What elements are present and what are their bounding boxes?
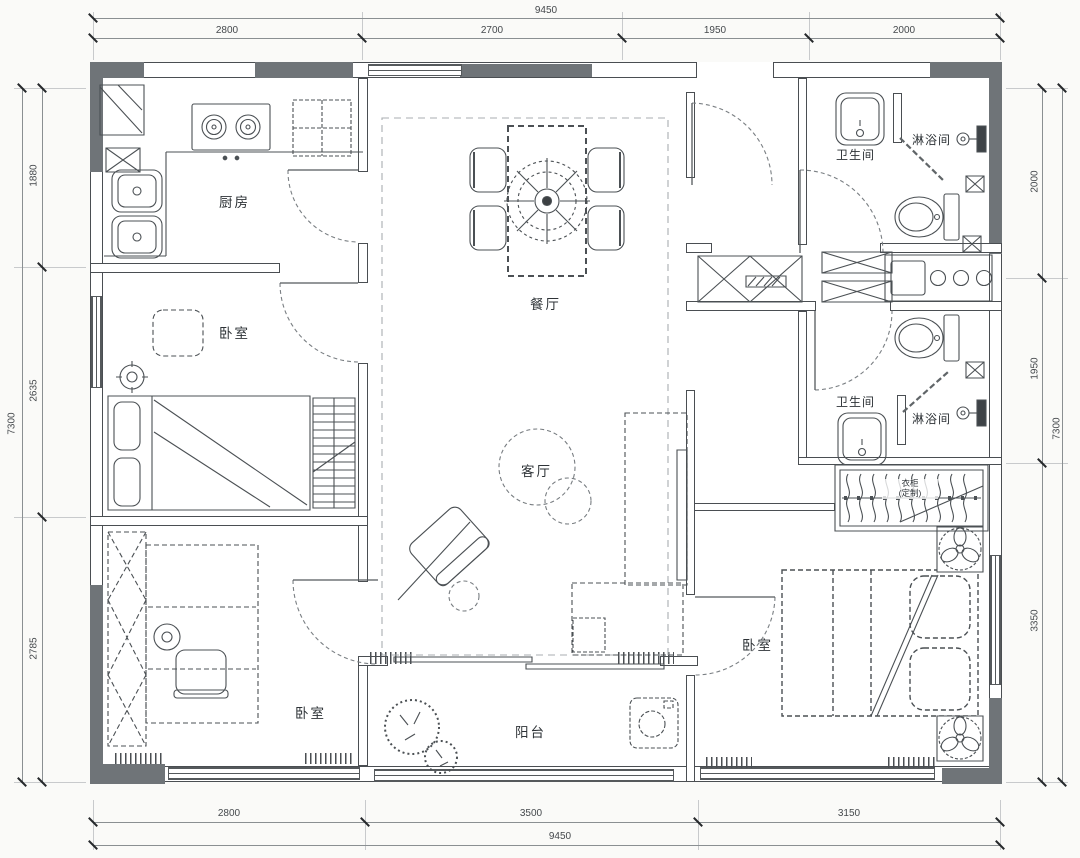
- side-table: [573, 618, 605, 652]
- downlight-icon: [116, 361, 148, 393]
- kitchen-sink-icon: [112, 170, 162, 258]
- washbasin-icon: [838, 413, 886, 465]
- wardrobe-column: [108, 532, 146, 746]
- radiator-icon: [313, 398, 355, 508]
- wardrobe-label: 衣柜 (定制): [882, 479, 938, 499]
- room-label-bathroom-mid: 卫生间: [836, 393, 875, 410]
- bed: [108, 396, 310, 510]
- toilet-icon: [895, 315, 959, 361]
- plant-detail: [400, 712, 448, 766]
- room-label-bedroom-left: 卧室: [219, 322, 250, 342]
- toilet-icon: [895, 194, 959, 240]
- tv-icon: [677, 450, 687, 580]
- shower-door-icon: [900, 138, 948, 412]
- pillow: [114, 402, 140, 450]
- kitchen-fixtures: [100, 85, 363, 258]
- washbasin-icon: [836, 93, 884, 145]
- shoe-cabinet-icon: [698, 256, 802, 302]
- dining-set: [470, 126, 624, 276]
- room-label-bathroom-top: 卫生间: [836, 146, 875, 163]
- ceiling-fan-icon: [937, 527, 983, 572]
- shower-head-icon: [957, 400, 986, 426]
- room-label-bedroom-master: 卧室: [742, 634, 773, 654]
- room-label-kitchen: 厨房: [219, 191, 250, 211]
- pillow: [910, 648, 970, 710]
- vanity-double-sink-icon: [885, 255, 992, 301]
- bathroom-top-fixtures: [836, 93, 986, 240]
- room-label-living: 客厅: [521, 460, 552, 480]
- shaft-icon: [106, 148, 140, 172]
- downlight-icon: [154, 624, 180, 650]
- washing-machine-icon: [630, 698, 678, 748]
- corridor-storage: [698, 252, 992, 302]
- room-label-dining: 餐厅: [530, 293, 561, 313]
- sliding-door: [526, 664, 664, 669]
- ceiling-lamp-icon: [504, 158, 590, 244]
- flue-icon: [100, 85, 144, 135]
- master-bedroom-furniture: [782, 527, 983, 761]
- room-label-shower-mid: 淋浴间: [912, 410, 951, 427]
- stove-icon: [192, 104, 270, 160]
- shaft-icons: [963, 176, 984, 378]
- living-room-items: [394, 413, 687, 669]
- sliding-door: [394, 657, 532, 662]
- shower-head-icon: [957, 126, 986, 152]
- plant-icon: [385, 700, 457, 773]
- pillow: [910, 576, 970, 638]
- ceiling-fan-icon: [937, 716, 983, 761]
- bathroom-mid-fixtures: [838, 315, 986, 465]
- floor-plan-canvas: 9450 2800 2700 1950 2000 2800 3500 3150 …: [0, 0, 1080, 858]
- bedroom-bottom-left-furniture: [108, 532, 258, 746]
- room-label-shower-top: 淋浴间: [912, 131, 951, 148]
- storage-cabinet-icon: [822, 252, 892, 302]
- chair-icon: [153, 310, 203, 356]
- pillow: [114, 458, 140, 506]
- wardrobe-label-line2: (定制): [884, 489, 936, 499]
- section-line: [398, 522, 470, 600]
- fridge-icon: [293, 100, 351, 156]
- zone-outline: [572, 583, 683, 655]
- armchair-icon: [406, 504, 491, 588]
- tv-cabinet-zone: [625, 413, 687, 585]
- room-label-balcony: 阳台: [515, 721, 546, 741]
- room-label-bedroom-bottom: 卧室: [295, 702, 326, 722]
- desk-icon: [174, 650, 228, 698]
